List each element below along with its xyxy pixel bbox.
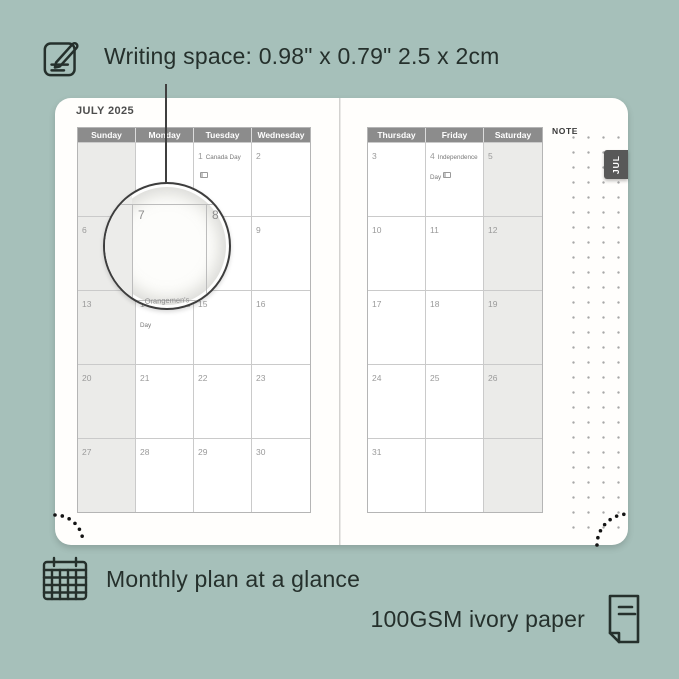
callout-connector-line	[165, 84, 167, 186]
magnified-day-number: 8	[212, 208, 219, 222]
calendar-day-cell: 23	[252, 364, 310, 438]
paper-sheet-icon	[602, 593, 646, 645]
calendar-day-cell	[426, 438, 484, 512]
magnified-grid-line	[132, 204, 133, 308]
calendar-day-cell	[484, 438, 542, 512]
day-number: 23	[256, 373, 265, 383]
calendar-day-cell: 18	[426, 290, 484, 364]
day-number: 30	[256, 447, 265, 457]
flag-icon	[443, 172, 451, 178]
day-header: Sunday	[78, 128, 136, 142]
calendar-day-cell: 29	[194, 438, 252, 512]
day-number: 11	[430, 225, 439, 235]
day-number: 13	[82, 299, 91, 309]
paper-quality-callout: 100GSM ivory paper	[370, 593, 646, 645]
calendar-day-cell: 16	[252, 290, 310, 364]
month-title: JULY 2025	[76, 105, 134, 117]
calendar-day-cell: 21	[136, 364, 194, 438]
magnified-weekend-shade	[105, 184, 132, 308]
calendar-day-cell: 25	[426, 364, 484, 438]
calendar-day-cell: 19	[484, 290, 542, 364]
calendar-day-cell: 22	[194, 364, 252, 438]
calendar-day-cell: 5	[484, 142, 542, 216]
calendar-day-cell: 31	[368, 438, 426, 512]
planner-spread: JULY 2025 SundayMondayTuesdayWednesday 1…	[55, 98, 628, 545]
day-number: 17	[372, 299, 381, 309]
day-header: Thursday	[368, 128, 426, 142]
day-number: 20	[82, 373, 91, 383]
writing-space-label: Writing space: 0.98" x 0.79" 2.5 x 2cm	[104, 43, 500, 70]
day-header-row: ThursdayFridaySaturday	[368, 128, 542, 142]
pencil-note-icon	[41, 32, 87, 80]
day-header: Friday	[426, 128, 484, 142]
day-number: 10	[372, 225, 381, 235]
day-header: Wednesday	[252, 128, 310, 142]
writing-space-callout: Writing space: 0.98" x 0.79" 2.5 x 2cm	[41, 32, 500, 80]
day-number: 16	[256, 299, 265, 309]
day-number: 24	[372, 373, 381, 383]
product-infographic: Writing space: 0.98" x 0.79" 2.5 x 2cm J…	[0, 0, 679, 679]
calendar-day-cell: 9	[252, 216, 310, 290]
calendar-day-cell: 12	[484, 216, 542, 290]
holiday-label: Independence Day	[430, 154, 478, 181]
note-dot-grid	[560, 126, 626, 540]
calendar-day-cell: 24	[368, 364, 426, 438]
day-number: 5	[488, 151, 493, 161]
magnified-grid-line	[105, 204, 229, 205]
calendar-day-cell: 10	[368, 216, 426, 290]
day-number: 6	[82, 225, 87, 235]
month-index-tab: JUL	[604, 150, 628, 179]
calendar-right-page: ThursdayFridaySaturday 34Independence Da…	[367, 127, 543, 513]
day-number: 29	[198, 447, 207, 457]
note-label: NOTE	[552, 126, 582, 136]
calendar-day-cell: 4Independence Day	[426, 142, 484, 216]
calendar-day-cell: 2	[252, 142, 310, 216]
calendar-day-cell: 17	[368, 290, 426, 364]
day-number: 31	[372, 447, 381, 457]
day-number: 27	[82, 447, 91, 457]
day-number: 4	[430, 151, 435, 161]
magnified-day-number: 7	[138, 208, 145, 222]
calendar-grid: 34Independence Day510111217181924252631	[368, 142, 542, 512]
perforated-corner-dots-left	[27, 501, 97, 571]
spine-divider	[339, 98, 341, 545]
magnified-grid-line	[206, 204, 207, 308]
day-number: 9	[256, 225, 261, 235]
day-number: 21	[140, 373, 149, 383]
monthly-plan-label: Monthly plan at a glance	[106, 566, 360, 593]
day-number: 1	[198, 151, 203, 161]
day-header: Saturday	[484, 128, 542, 142]
day-number: 12	[488, 225, 497, 235]
perforated-corner-dots-right	[583, 498, 653, 568]
day-number: 2	[256, 151, 261, 161]
day-number: 22	[198, 373, 207, 383]
magnifier-circle: 7 8 Orangemen's	[103, 182, 231, 310]
calendar-day-cell: 11	[426, 216, 484, 290]
calendar-day-cell: 26	[484, 364, 542, 438]
day-number: 3	[372, 151, 377, 161]
calendar-day-cell: 28	[136, 438, 194, 512]
month-tab-label: JUL	[611, 155, 621, 174]
calendar-day-cell: 20	[78, 364, 136, 438]
day-number: 25	[430, 373, 439, 383]
day-number: 28	[140, 447, 149, 457]
paper-quality-label: 100GSM ivory paper	[370, 606, 585, 633]
holiday-label: Canada Day	[206, 154, 241, 161]
day-header: Tuesday	[194, 128, 252, 142]
flag-icon	[200, 172, 208, 178]
day-number: 19	[488, 299, 497, 309]
calendar-day-cell: 30	[252, 438, 310, 512]
day-number: 26	[488, 373, 497, 383]
day-header-row: SundayMondayTuesdayWednesday	[78, 128, 310, 142]
day-number: 18	[430, 299, 439, 309]
calendar-day-cell: 3	[368, 142, 426, 216]
